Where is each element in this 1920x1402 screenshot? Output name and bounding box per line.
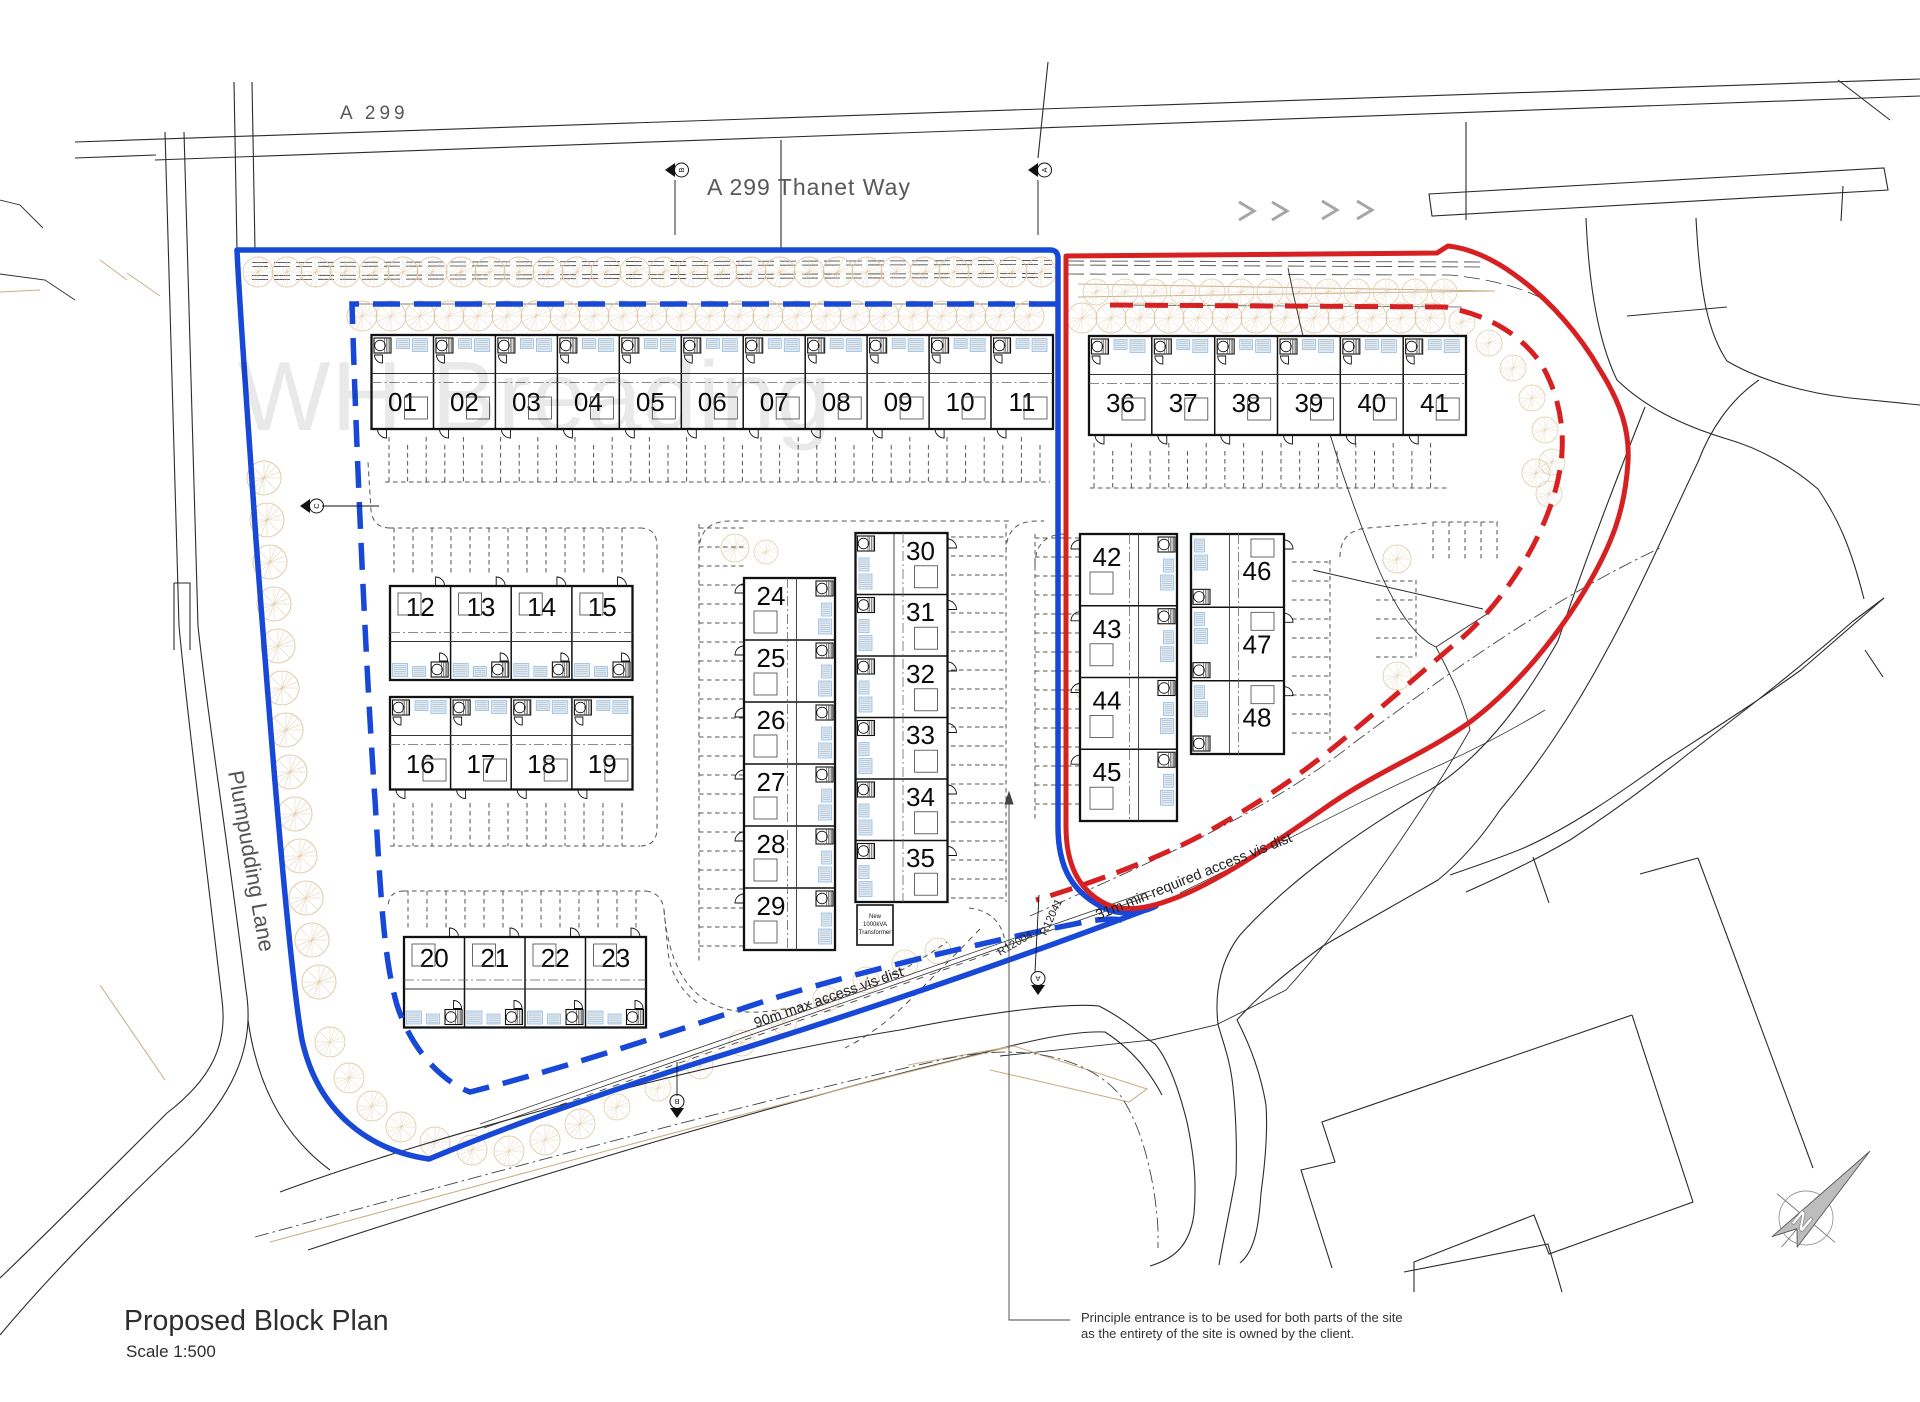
svg-text:44: 44 [1093, 686, 1122, 716]
svg-text:42: 42 [1093, 542, 1122, 572]
svg-text:47: 47 [1243, 629, 1272, 659]
svg-text:10: 10 [946, 387, 975, 417]
svg-text:16: 16 [406, 749, 435, 779]
svg-text:A: A [1040, 167, 1049, 172]
svg-text:Proposed Block Plan: Proposed Block Plan [124, 1305, 389, 1337]
svg-text:14: 14 [527, 592, 556, 622]
svg-text:18: 18 [527, 749, 556, 779]
svg-text:34: 34 [906, 782, 935, 812]
svg-text:41: 41 [1420, 388, 1449, 418]
svg-text:30: 30 [906, 536, 935, 566]
svg-text:37: 37 [1169, 388, 1198, 418]
svg-text:13: 13 [466, 592, 495, 622]
svg-text:25: 25 [757, 643, 786, 673]
svg-text:A 299: A 299 [340, 103, 409, 124]
svg-text:New: New [869, 914, 882, 920]
svg-text:C: C [312, 503, 321, 509]
svg-text:39: 39 [1294, 388, 1323, 418]
svg-text:29: 29 [757, 891, 786, 921]
svg-text:WH Breading: WH Breading [238, 341, 832, 451]
svg-text:A 299 Thanet Way: A 299 Thanet Way [707, 174, 911, 200]
svg-text:15: 15 [588, 592, 617, 622]
svg-text:48: 48 [1243, 703, 1272, 733]
svg-text:B: B [674, 1097, 679, 1106]
svg-text:46: 46 [1243, 556, 1272, 586]
svg-text:23: 23 [601, 943, 630, 973]
svg-text:21: 21 [480, 943, 509, 973]
svg-text:Scale 1:500: Scale 1:500 [126, 1342, 216, 1361]
svg-text:1000kVA: 1000kVA [863, 922, 887, 928]
svg-text:26: 26 [757, 705, 786, 735]
svg-text:12: 12 [406, 592, 435, 622]
svg-text:43: 43 [1093, 614, 1122, 644]
svg-text:24: 24 [757, 581, 786, 611]
svg-text:32: 32 [906, 659, 935, 689]
svg-text:38: 38 [1232, 388, 1261, 418]
svg-text:B: B [677, 167, 686, 172]
svg-text:33: 33 [906, 720, 935, 750]
svg-text:Transformer: Transformer [859, 930, 891, 936]
svg-text:27: 27 [757, 767, 786, 797]
svg-text:20: 20 [420, 943, 449, 973]
svg-text:11: 11 [1009, 387, 1036, 417]
svg-text:as the entirety of the site is: as the entirety of the site is owned by … [1081, 1326, 1354, 1341]
svg-text:45: 45 [1093, 757, 1122, 787]
svg-text:36: 36 [1106, 388, 1135, 418]
svg-text:28: 28 [757, 829, 786, 859]
svg-text:Principle entrance is to be us: Principle entrance is to be used for bot… [1081, 1310, 1403, 1325]
svg-text:A: A [1035, 974, 1040, 983]
svg-text:17: 17 [466, 749, 495, 779]
svg-text:09: 09 [884, 387, 913, 417]
svg-text:40: 40 [1357, 388, 1386, 418]
svg-text:35: 35 [906, 843, 935, 873]
svg-text:31: 31 [906, 597, 935, 627]
svg-text:22: 22 [541, 943, 570, 973]
svg-text:19: 19 [588, 749, 617, 779]
